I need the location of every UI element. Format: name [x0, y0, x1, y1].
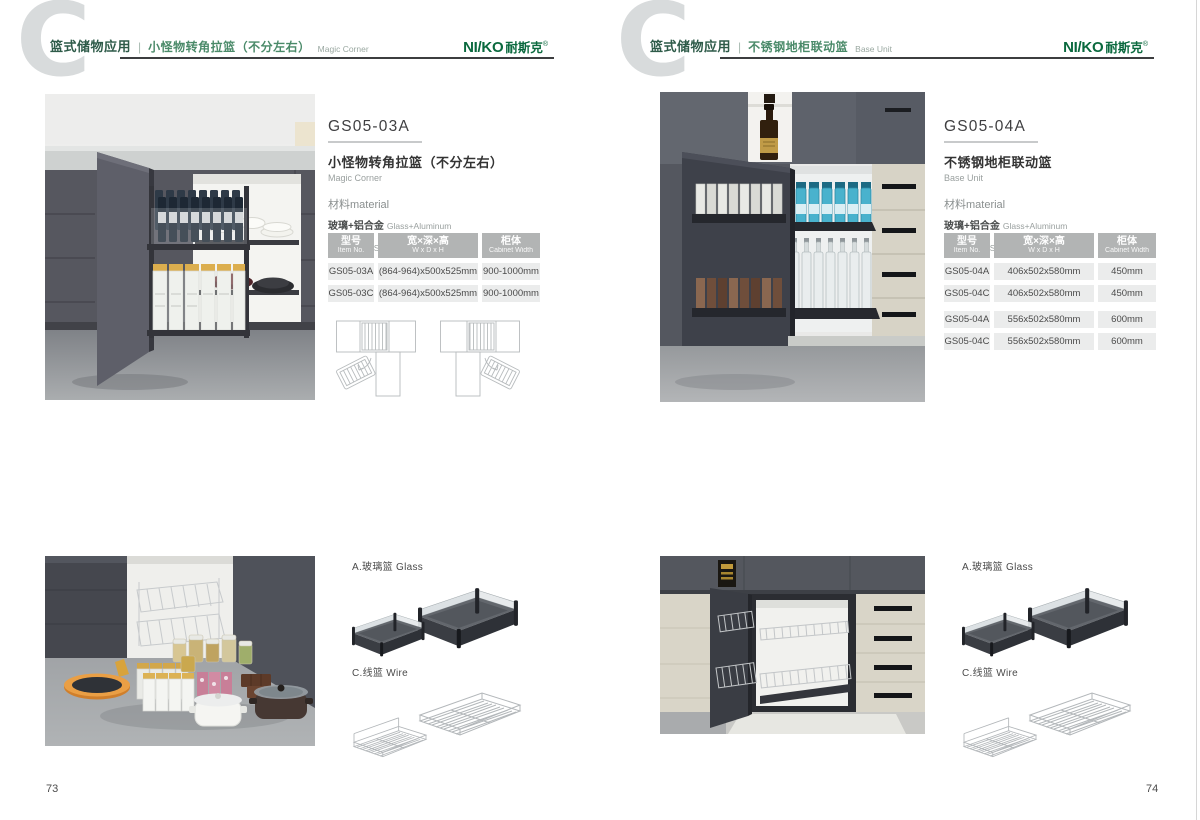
- product-name-en: Base Unit: [944, 173, 1179, 183]
- header-title-en: Magic Corner: [318, 44, 369, 55]
- registered-mark: ®: [1143, 41, 1148, 48]
- header-title: 小怪物转角拉篮（不分左右）: [148, 38, 311, 55]
- header-title: 不锈钢地柜联动篮: [748, 38, 848, 55]
- header-category: 篮式储物应用: [650, 36, 731, 55]
- accessory-glass: A.玻璃篮 Glass: [352, 558, 524, 673]
- product-photo-top: [660, 92, 925, 402]
- glass-basket-image: [352, 581, 524, 673]
- glass-basket-label: A.玻璃篮 Glass: [352, 558, 524, 573]
- col-header-cabinet: 柜体Cabinet Width: [482, 233, 540, 258]
- page-header: 篮式储物应用 | 不锈钢地柜联动篮 Base Unit: [650, 36, 892, 55]
- product-photo-bottom: [45, 556, 315, 746]
- wire-basket-label: C.线篮 Wire: [962, 664, 1140, 679]
- col-header-item-no: 型号Item No.: [328, 233, 374, 258]
- material-line: 玻璃+铝合金Glass+Aluminum: [944, 216, 1179, 234]
- table-row: GS05-03C(864-964)x500x525mm900-1000mm: [328, 285, 540, 302]
- col-header-cabinet: 柜体Cabinet Width: [1098, 233, 1156, 258]
- brand-logo-cn: 耐斯克: [1105, 41, 1143, 55]
- page-header: 篮式储物应用 | 小怪物转角拉篮（不分左右） Magic Corner: [50, 36, 369, 55]
- accessory-wire: C.线篮 Wire: [962, 664, 1140, 779]
- glass-basket-image: [962, 581, 1134, 673]
- page-number: 74: [1146, 783, 1158, 795]
- table-row: GS05-04A556x502x580mm600mm: [944, 311, 1156, 328]
- header-rule: [720, 57, 1154, 59]
- material-heading: 材料material: [328, 196, 563, 212]
- wire-basket-image: [962, 689, 1140, 779]
- product-photo-top: [45, 94, 315, 400]
- header-title-en: Base Unit: [855, 44, 892, 55]
- code-underline: [328, 141, 422, 143]
- header-category: 篮式储物应用: [50, 36, 131, 55]
- registered-mark: ®: [543, 41, 548, 48]
- spec-table: 型号Item No. 宽×深×高W x D x H 柜体Cabinet Widt…: [944, 233, 1156, 350]
- accessory-glass: A.玻璃篮 Glass: [962, 558, 1134, 673]
- wire-basket-label: C.线篮 Wire: [352, 664, 530, 679]
- material-line: 玻璃+铝合金Glass+Aluminum: [328, 216, 563, 234]
- table-row: GS05-04C406x502x580mm450mm: [944, 285, 1156, 302]
- brand-logo-latin: NI/KO: [1063, 39, 1103, 56]
- product-name-en: Magic Corner: [328, 173, 563, 183]
- header-rule: [120, 57, 554, 59]
- header-divider: |: [138, 40, 141, 55]
- table-row: GS05-04C556x502x580mm600mm: [944, 333, 1156, 350]
- material-heading: 材料material: [944, 196, 1179, 212]
- product-photo-bottom: [660, 556, 925, 734]
- corner-diagram-right: [439, 316, 521, 402]
- code-underline: [944, 141, 1038, 143]
- header-divider: |: [738, 40, 741, 55]
- brand-logo: NI/KO耐斯克®: [1048, 37, 1148, 57]
- product-name: 不锈钢地柜联动篮: [944, 152, 1179, 171]
- corner-diagram-left: [335, 316, 417, 402]
- col-header-dimensions: 宽×深×高W x D x H: [994, 233, 1094, 258]
- table-row: GS05-04A406x502x580mm450mm: [944, 263, 1156, 280]
- page-right: C 篮式储物应用 | 不锈钢地柜联动篮 Base Unit NI/KO耐斯克®: [600, 0, 1200, 820]
- page-edge-line: [1196, 0, 1197, 820]
- brand-logo-cn: 耐斯克: [505, 41, 543, 55]
- wire-basket-image: [352, 689, 530, 779]
- page-number: 73: [46, 783, 58, 795]
- corner-diagrams: [335, 316, 521, 402]
- page-left: C 篮式储物应用 | 小怪物转角拉篮（不分左右） Magic Corner NI…: [0, 0, 600, 820]
- accessory-wire: C.线篮 Wire: [352, 664, 530, 779]
- glass-basket-label: A.玻璃篮 Glass: [962, 558, 1134, 573]
- table-header-row: 型号Item No. 宽×深×高W x D x H 柜体Cabinet Widt…: [944, 233, 1156, 258]
- table-header-row: 型号Item No. 宽×深×高W x D x H 柜体Cabinet Widt…: [328, 233, 540, 258]
- brand-logo: NI/KO耐斯克®: [448, 37, 548, 57]
- table-row: GS05-03A(864-964)x500x525mm900-1000mm: [328, 263, 540, 280]
- product-name: 小怪物转角拉篮（不分左右）: [328, 152, 563, 171]
- col-header-dimensions: 宽×深×高W x D x H: [378, 233, 478, 258]
- col-header-item-no: 型号Item No.: [944, 233, 990, 258]
- product-code: GS05-03A: [328, 118, 563, 136]
- brand-logo-latin: NI/KO: [463, 39, 503, 56]
- product-code: GS05-04A: [944, 118, 1179, 136]
- catalog-spread: C 篮式储物应用 | 小怪物转角拉篮（不分左右） Magic Corner NI…: [0, 0, 1200, 820]
- spec-table: 型号Item No. 宽×深×高W x D x H 柜体Cabinet Widt…: [328, 233, 540, 302]
